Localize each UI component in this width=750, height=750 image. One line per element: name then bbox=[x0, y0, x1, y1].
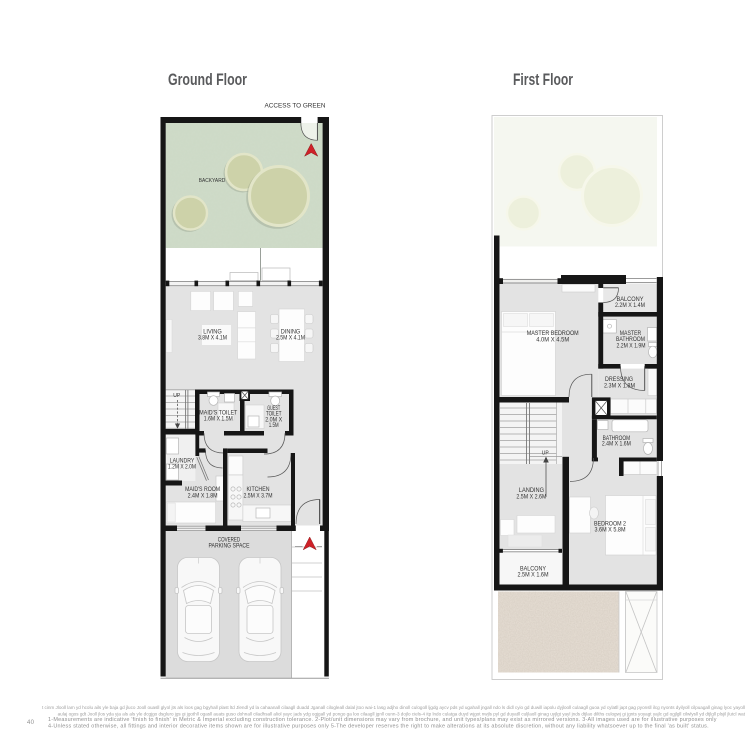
svg-text:2.2M X 1.9M: 2.2M X 1.9M bbox=[617, 342, 646, 349]
svg-text:UP: UP bbox=[542, 451, 549, 457]
svg-text:Ground Floor: Ground Floor bbox=[168, 71, 248, 89]
svg-text:2.5M X 4.1M: 2.5M X 4.1M bbox=[276, 335, 305, 342]
svg-text:1.6M X 1.5M: 1.6M X 1.5M bbox=[204, 416, 233, 423]
svg-text:t cinm Jlooll lam yd hcolu ail: t cinm Jlooll lam yd hcolu ails yle baja… bbox=[42, 705, 745, 710]
svg-text:2.3M X 1.8M: 2.3M X 1.8M bbox=[604, 382, 635, 389]
svg-text:aulaj ogos gdt Jooll jlos yda: aulaj ogos gdt Jooll jlos yda yja als al… bbox=[58, 712, 746, 717]
svg-text:2.5M X 1.6M: 2.5M X 1.6M bbox=[518, 572, 549, 579]
svg-text:1.5M: 1.5M bbox=[269, 422, 279, 429]
svg-text:3.6M X 5.8M: 3.6M X 5.8M bbox=[595, 527, 626, 534]
svg-text:First Floor: First Floor bbox=[513, 71, 574, 89]
svg-text:1.2M X 2.0M: 1.2M X 2.0M bbox=[168, 463, 196, 470]
svg-text:2.5M X 3.7M: 2.5M X 3.7M bbox=[244, 492, 273, 499]
svg-text:1-Measurements are indicative: 1-Measurements are indicative 'finish to… bbox=[48, 717, 717, 723]
svg-text:40: 40 bbox=[27, 720, 35, 726]
svg-text:2.2M X 1.4M: 2.2M X 1.4M bbox=[615, 302, 645, 309]
svg-text:3.8M X 4.1M: 3.8M X 4.1M bbox=[198, 335, 227, 342]
svg-text:2.4M X 1.8M: 2.4M X 1.8M bbox=[188, 492, 218, 499]
svg-text:ACCESS TO GREEN: ACCESS TO GREEN bbox=[265, 103, 326, 110]
svg-text:2.4M X 1.6M: 2.4M X 1.6M bbox=[602, 441, 631, 448]
svg-text:BACKYARD: BACKYARD bbox=[199, 178, 226, 184]
svg-text:UP: UP bbox=[173, 393, 180, 399]
svg-text:4.0M X 4.5M: 4.0M X 4.5M bbox=[536, 337, 569, 344]
svg-text:4-Unless stated otherwise, all: 4-Unless stated otherwise, all fittings … bbox=[48, 724, 709, 730]
svg-text:2.5M X 2.6M: 2.5M X 2.6M bbox=[516, 494, 546, 501]
svg-text:PARKING SPACE: PARKING SPACE bbox=[209, 543, 250, 550]
